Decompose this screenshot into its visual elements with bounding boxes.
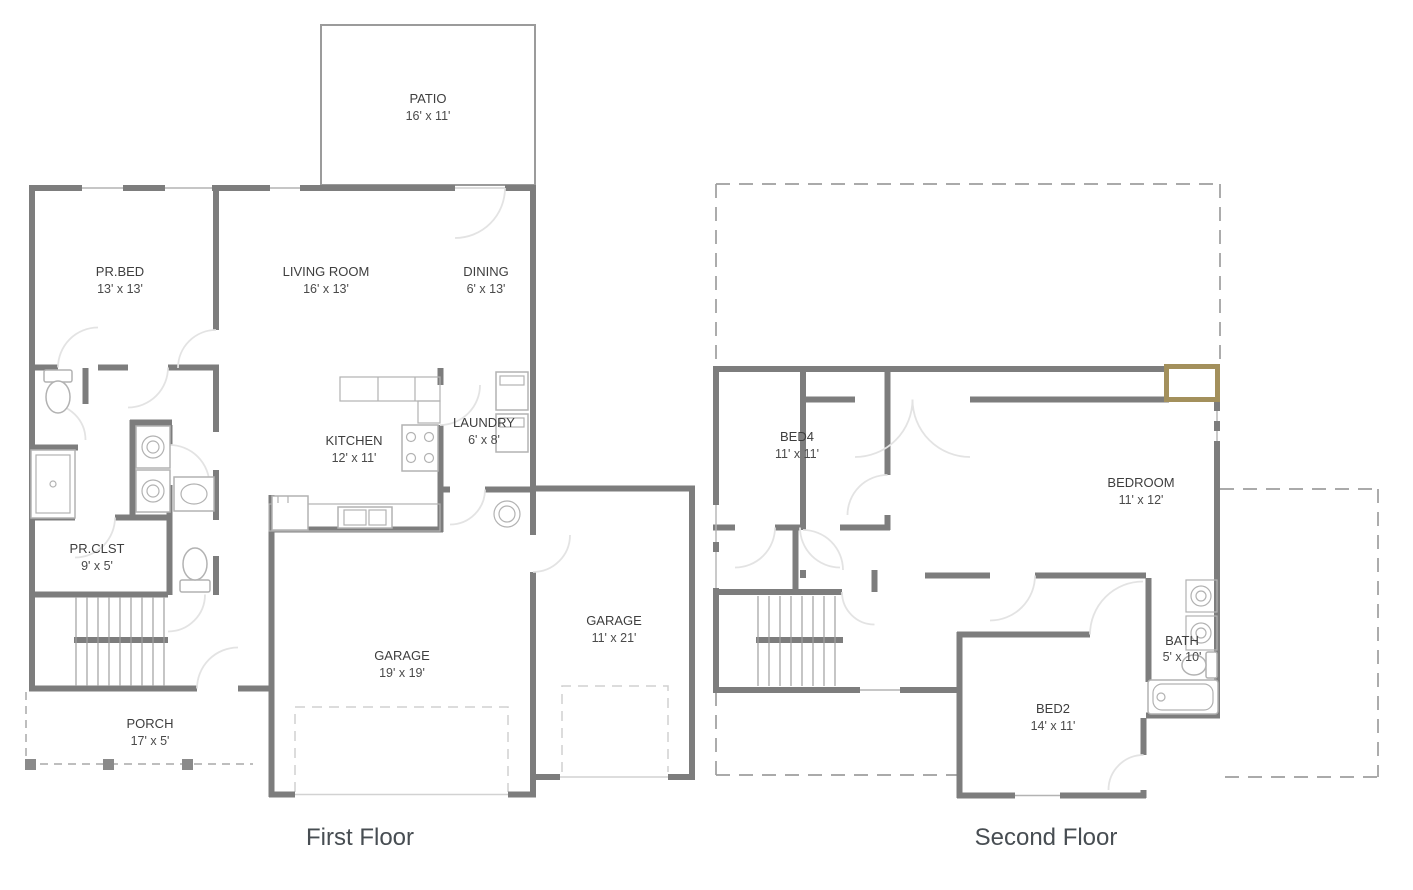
room-dims-garage-main: 19' x 19' <box>379 666 425 680</box>
room-label-bedroom: BEDROOM <box>1107 475 1174 490</box>
fireplace-chase-accent <box>1167 367 1218 400</box>
room-label-patio: PATIO <box>409 91 446 106</box>
room-dims-pr-clst: 9' x 5' <box>81 559 113 573</box>
room-label-garage-side: GARAGE <box>586 613 642 628</box>
toilet-symbol <box>44 370 72 413</box>
room-label-bath: BATH <box>1165 633 1199 648</box>
stove-symbol <box>402 425 438 471</box>
room-dims-kitchen: 12' x 11' <box>332 451 377 465</box>
room-dims-living: 16' x 13' <box>303 282 349 296</box>
bathtub-symbol <box>1148 680 1218 714</box>
room-dims-bath: 5' x 10' <box>1163 650 1202 664</box>
water-heater-symbol <box>494 501 520 527</box>
porch-post <box>25 759 36 770</box>
laundry-machines-symbol <box>496 372 528 452</box>
room-dims-dining: 6' x 13' <box>467 282 506 296</box>
room-dims-laundry: 6' x 8' <box>468 433 500 447</box>
room-label-dining: DINING <box>463 264 509 279</box>
room-dims-garage-side: 11' x 21' <box>592 631 637 645</box>
shower-symbol <box>31 450 75 518</box>
room-label-pr-bed: PR.BED <box>96 264 144 279</box>
room-label-porch: PORCH <box>127 716 174 731</box>
room-label-pr-clst: PR.CLST <box>70 541 125 556</box>
room-dims-bedroom: 11' x 12' <box>1119 493 1164 507</box>
porch-post <box>103 759 114 770</box>
room-dims-bed4: 11' x 11' <box>775 447 819 461</box>
first-floor-title: First Floor <box>306 824 414 851</box>
kitchen-sink-symbol <box>338 507 392 528</box>
toilet-symbol <box>180 548 210 592</box>
room-label-bed2: BED2 <box>1036 701 1070 716</box>
garage-door-swing-dashed <box>295 686 668 792</box>
refrigerator-symbol <box>272 496 308 530</box>
room-label-kitchen: KITCHEN <box>325 433 382 448</box>
floor-plan-page: PATIO 16' x 11' PR.BED 13' x 13' LIVING … <box>0 0 1413 890</box>
second-floor-title: Second Floor <box>975 824 1118 851</box>
room-label-garage-main: GARAGE <box>374 648 430 663</box>
vanity-sink-symbol <box>174 477 214 511</box>
porch-outline <box>25 692 253 770</box>
room-dims-patio: 16' x 11' <box>406 109 451 123</box>
room-label-laundry: LAUNDRY <box>453 415 515 430</box>
washer-dryer-symbol <box>136 426 170 512</box>
room-dims-bed2: 14' x 11' <box>1031 719 1076 733</box>
room-label-bed4: BED4 <box>780 429 814 444</box>
room-dims-pr-bed: 13' x 13' <box>97 282 143 296</box>
room-dims-porch: 17' x 5' <box>131 734 170 748</box>
room-label-living: LIVING ROOM <box>283 264 370 279</box>
porch-post <box>182 759 193 770</box>
floor-plan-drawing: PATIO 16' x 11' PR.BED 13' x 13' LIVING … <box>0 0 1413 890</box>
